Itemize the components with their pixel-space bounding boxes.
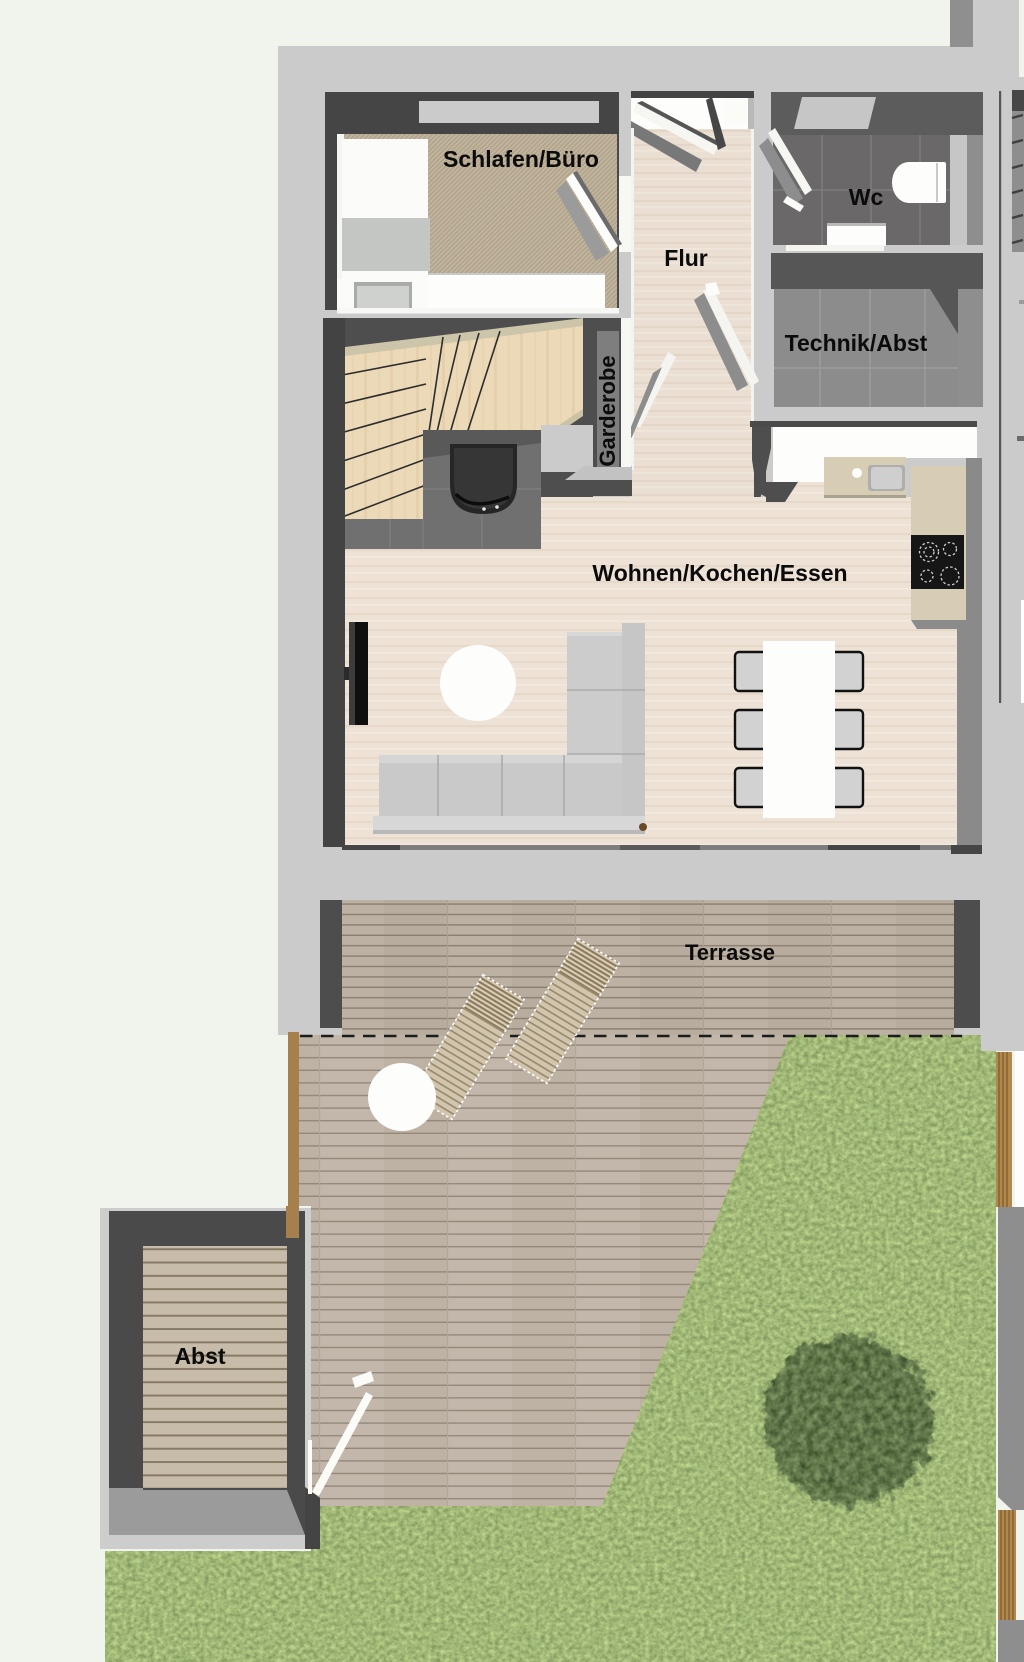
- svg-text:Garderobe: Garderobe: [595, 355, 620, 466]
- svg-text:Terrasse: Terrasse: [685, 940, 775, 965]
- svg-text:Abst: Abst: [174, 1343, 225, 1369]
- svg-text:Schlafen/Büro: Schlafen/Büro: [443, 146, 599, 172]
- svg-text:Flur: Flur: [664, 245, 707, 271]
- svg-text:Wohnen/Kochen/Essen: Wohnen/Kochen/Essen: [592, 560, 847, 586]
- svg-text:Technik/Abst: Technik/Abst: [785, 330, 928, 356]
- svg-text:Wc: Wc: [849, 184, 884, 210]
